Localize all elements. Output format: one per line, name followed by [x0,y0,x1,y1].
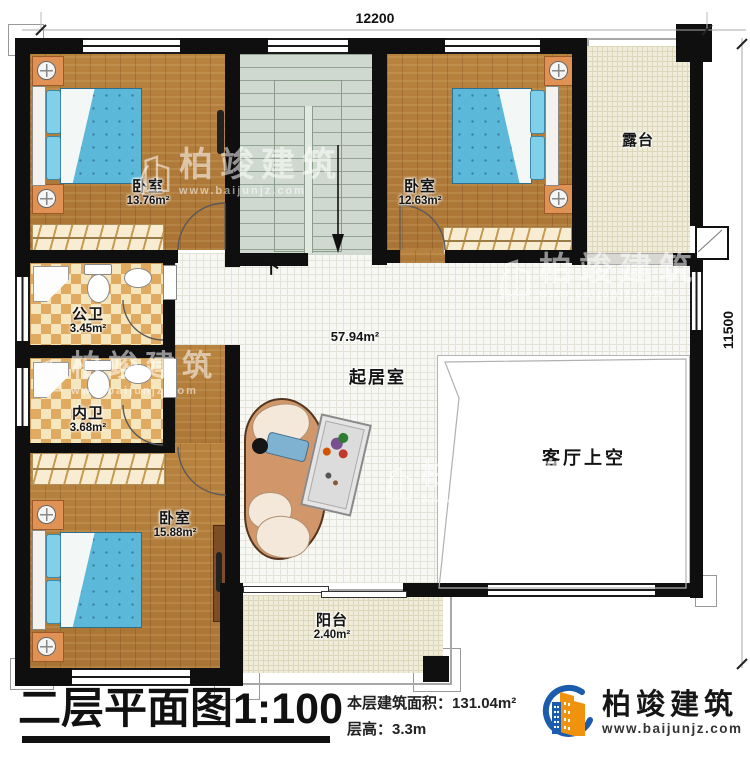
pillow [530,136,545,180]
column [423,656,449,682]
wall [372,38,387,265]
pillow [46,136,61,180]
terrace-floor [587,46,690,253]
window [83,38,180,54]
bed-headboard [32,86,46,186]
bed-sheet [61,533,95,627]
window [488,583,655,597]
nightstand [32,500,64,530]
living-void-area [437,355,690,585]
company-logo-icon [540,684,594,742]
stair-divider [304,106,313,253]
lamp-icon [37,505,56,524]
lamp-icon [549,189,568,208]
bed [452,88,532,184]
wall [220,583,243,686]
lamp-icon [37,637,56,656]
window [15,368,30,426]
sliding-door [243,586,329,593]
wall [225,38,240,267]
bay-window [695,226,729,260]
wardrobe [32,453,165,485]
wall [572,38,587,265]
pillow [46,534,61,578]
private-bath-label: 内卫 3.68m² [38,405,138,435]
terrace-label: 露台 [600,132,676,149]
wall [163,396,175,453]
door-panel [163,265,177,300]
living-void-label: 客厅上空 [522,448,646,469]
wall [15,38,83,54]
wall [348,38,445,54]
door-panel [163,358,177,398]
wardrobe [32,224,164,252]
toilet [87,370,110,399]
bed-sheet [61,89,95,183]
sink [124,364,152,384]
wall [15,345,163,358]
floor-plan: 12200 11500 卧室 13.76m² 卧室 12.63m² 露台 公卫 … [0,0,750,760]
public-bath-label: 公卫 3.45m² [38,306,138,336]
bed [60,88,142,184]
pillow [46,90,61,134]
title-underline [22,736,330,743]
wall [655,583,690,597]
stair-down-label: 下 [263,253,280,278]
window [445,38,540,54]
wall [15,250,178,263]
building-area-text: 本层建筑面积：131.04m² [347,692,516,713]
person [252,438,268,454]
wall [445,250,572,263]
nightstand [32,184,64,214]
bed-sheet [498,89,531,183]
wall [387,250,400,263]
wall [403,583,488,597]
pillow [46,580,61,624]
dimension-right: 11500 [720,300,736,360]
window [268,38,348,54]
dimension-top: 12200 [330,10,420,26]
living-label: 起居室 [330,368,425,388]
window [690,272,703,330]
balcony-label: 阳台 2.40m² [282,612,382,642]
wall [180,38,268,54]
nightstand [544,184,574,214]
sink [124,268,152,288]
wall [163,298,175,358]
floor-height-text: 层高：3.3m [347,718,426,739]
living-area-value: 57.94m² [315,330,395,345]
wall [163,250,175,265]
lamp-icon [549,61,568,80]
bed-headboard [545,86,559,186]
bedroom1-label: 卧室 13.76m² [98,178,198,208]
bedroom2-label: 卧室 12.63m² [370,178,470,208]
page-title: 二层平面图1:100 [18,674,343,736]
nightstand [544,56,574,86]
sliding-door [321,591,407,598]
lamp-icon [37,61,56,80]
door-threshold [400,250,445,263]
bedroom3-label: 卧室 15.88m² [125,510,225,540]
wall [15,38,30,686]
bed-headboard [32,530,46,630]
lamp-icon [37,189,56,208]
pillow [530,90,545,134]
bed [60,532,142,628]
toilet [87,274,110,303]
window [15,277,30,341]
wall [15,443,163,453]
company-logo: 柏竣建筑 www.baijunjz.com [540,684,743,742]
nightstand [32,632,64,662]
beam [587,253,675,265]
nightstand [32,56,64,86]
tv-icon [217,110,224,154]
column [676,24,712,62]
wall [690,330,703,598]
wall [690,62,703,226]
